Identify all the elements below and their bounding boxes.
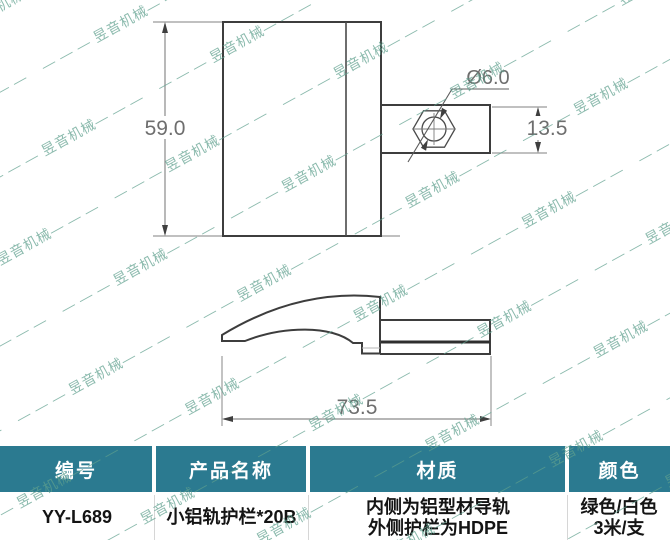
side-view-claw-profile — [222, 296, 380, 354]
cell-product-code: YY-L689 — [0, 495, 154, 540]
spec-table-data-row: YY-L689 小铝轨护栏*20B 内侧为铝型材导轨 外侧护栏为HDPE 绿色/… — [0, 495, 670, 540]
material-line-1: 内侧为铝型材导轨 — [366, 497, 510, 518]
dim-135-arrow-bottom — [535, 142, 541, 153]
side-view-tail — [380, 320, 490, 354]
color-line-2: 3米/支 — [593, 518, 644, 539]
color-line-1: 绿色/白色 — [580, 497, 657, 518]
material-line-2: 外侧护栏为HDPE — [368, 518, 508, 539]
header-cell-color: 颜色 — [569, 446, 670, 492]
dim-59-label: 59.0 — [145, 117, 186, 140]
dim-59-arrow-top — [162, 22, 168, 33]
front-view-body — [223, 22, 381, 236]
dim-735-label: 73.5 — [337, 396, 378, 419]
header-cell-code: 编号 — [0, 446, 152, 492]
dim-59-arrow-bottom — [162, 225, 168, 236]
spec-table: 编号 产品名称 材质 颜色 YY-L689 小铝轨护栏*20B 内侧为铝型材导轨… — [0, 446, 670, 540]
header-cell-name: 产品名称 — [156, 446, 306, 492]
cell-material: 内侧为铝型材导轨 外侧护栏为HDPE — [308, 495, 567, 540]
cell-product-name: 小铝轨护栏*20B — [154, 495, 308, 540]
technical-drawing: 59.0 Ø6.0 13.5 73.5 — [0, 0, 670, 446]
dim-735-arrow-right — [480, 416, 491, 422]
header-cell-material: 材质 — [310, 446, 565, 492]
dim-hole-label: Ø6.0 — [466, 67, 509, 89]
dim-735-arrow-left — [222, 416, 233, 422]
spec-table-header-row: 编号 产品名称 材质 颜色 — [0, 446, 670, 492]
cell-color: 绿色/白色 3米/支 — [567, 495, 670, 540]
dim-59-extension-lines — [153, 22, 400, 236]
dim-135-label: 13.5 — [527, 117, 568, 140]
